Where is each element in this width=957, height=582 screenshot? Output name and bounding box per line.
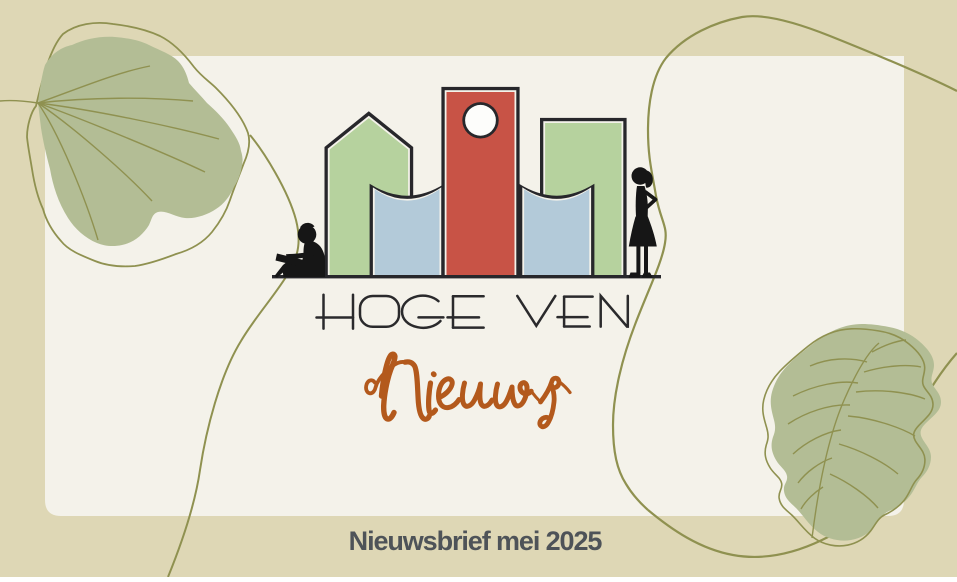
svg-text:Nieuwsbrief mei 2025: Nieuwsbrief mei 2025: [349, 526, 603, 556]
